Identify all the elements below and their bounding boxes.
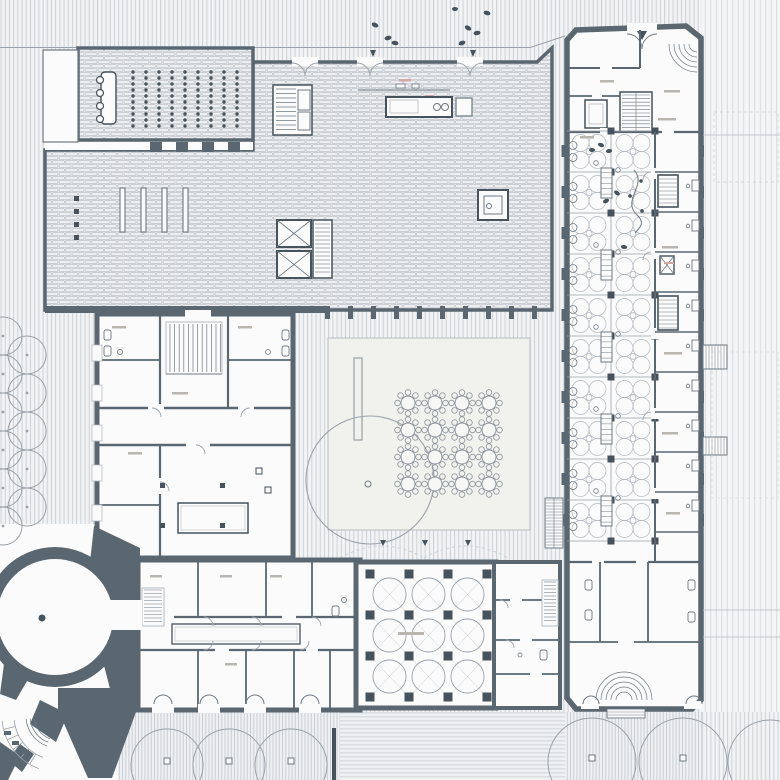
door-opening <box>600 64 612 72</box>
circle <box>170 118 173 121</box>
circle <box>482 396 496 410</box>
circle <box>209 82 212 85</box>
rect <box>692 380 699 391</box>
rect <box>562 145 567 157</box>
circle <box>131 70 134 73</box>
circle <box>26 430 29 433</box>
terrace-hatch-mid <box>340 712 565 780</box>
circle <box>170 106 173 109</box>
door-opening <box>292 57 318 66</box>
door-opening <box>148 404 164 412</box>
circle <box>2 373 5 376</box>
circle <box>209 118 212 121</box>
circle <box>157 88 160 91</box>
circle <box>196 82 199 85</box>
rect <box>162 188 167 232</box>
circle <box>209 100 212 103</box>
rect <box>92 505 102 521</box>
circle <box>196 118 199 121</box>
stair-block <box>313 220 332 278</box>
umbrella-post <box>680 755 686 761</box>
rect <box>371 306 376 319</box>
circle <box>455 450 469 464</box>
rect <box>699 514 704 526</box>
circle <box>482 450 496 464</box>
elevator <box>298 90 310 110</box>
rotunda-center-point <box>39 615 46 622</box>
door-opening <box>592 92 602 100</box>
southwest-block <box>138 560 360 713</box>
label-smudge <box>658 118 676 121</box>
label-smudge <box>112 326 126 329</box>
circle <box>455 423 469 437</box>
rect <box>608 374 615 381</box>
circle <box>482 423 496 437</box>
circle <box>196 88 199 91</box>
circle <box>455 477 469 491</box>
circle <box>157 112 160 115</box>
circle <box>401 396 415 410</box>
marker <box>265 487 271 493</box>
toilet <box>282 330 289 340</box>
bar-equipment <box>396 84 405 88</box>
umbrella-post <box>164 758 170 764</box>
podium-seat <box>97 103 104 110</box>
person-marker <box>452 7 458 11</box>
circle <box>222 70 225 73</box>
circle <box>235 82 238 85</box>
circle <box>2 411 5 414</box>
fountain <box>478 190 508 220</box>
circle <box>157 70 160 73</box>
circle <box>157 106 160 109</box>
circle <box>209 124 212 127</box>
circle <box>209 70 212 73</box>
toilet <box>540 650 547 660</box>
door-opening <box>520 636 532 644</box>
rect <box>699 309 704 321</box>
rotunda-floor <box>0 559 113 675</box>
column <box>160 483 165 488</box>
toilet <box>282 346 289 356</box>
rect <box>183 188 188 232</box>
label-smudge <box>580 136 594 139</box>
fixture <box>692 180 699 511</box>
rect <box>92 345 102 361</box>
rect <box>692 300 699 311</box>
circle <box>196 100 199 103</box>
rect <box>532 306 537 319</box>
toilet <box>104 330 111 340</box>
rect <box>562 350 567 362</box>
rect <box>608 128 615 135</box>
rect <box>483 611 492 620</box>
circle <box>196 106 199 109</box>
circle <box>183 106 186 109</box>
door-opening <box>662 128 674 136</box>
circle <box>131 124 134 127</box>
door-opening <box>457 57 483 66</box>
dot <box>640 209 644 213</box>
rect <box>608 538 615 545</box>
circle <box>131 112 134 115</box>
circle <box>235 76 238 79</box>
circle <box>183 118 186 121</box>
rect <box>699 268 704 280</box>
flag-pole <box>332 728 336 780</box>
rect <box>325 306 330 319</box>
circle <box>222 106 225 109</box>
door-opening <box>282 613 296 621</box>
circle <box>235 124 238 127</box>
circle <box>209 106 212 109</box>
circle <box>157 100 160 103</box>
circle <box>144 100 147 103</box>
circle <box>183 82 186 85</box>
rect <box>483 570 492 579</box>
circle <box>170 94 173 97</box>
rect <box>699 391 704 403</box>
label-smudge <box>664 352 682 355</box>
circle <box>401 477 415 491</box>
door-opening <box>510 596 522 604</box>
rect <box>141 188 146 232</box>
floor-plan-canvas <box>0 0 780 780</box>
entrance-steps <box>607 709 645 718</box>
circle <box>222 88 225 91</box>
circle <box>144 88 147 91</box>
circle <box>183 70 186 73</box>
circle <box>144 76 147 79</box>
rect <box>651 408 659 419</box>
circle <box>131 106 134 109</box>
bar-cabinet <box>456 98 472 116</box>
circle <box>157 118 160 121</box>
column <box>220 483 225 488</box>
circle <box>235 106 238 109</box>
door-opening <box>592 558 604 566</box>
rect <box>92 465 102 481</box>
label-smudge <box>664 90 680 93</box>
circle <box>131 88 134 91</box>
rect <box>608 292 615 299</box>
podium-seat <box>97 116 104 123</box>
rect <box>692 220 699 231</box>
circle <box>131 82 134 85</box>
circle <box>131 100 134 103</box>
rect <box>92 425 102 441</box>
passage <box>104 600 142 630</box>
rect <box>562 391 567 403</box>
rect <box>562 309 567 321</box>
dot <box>639 179 643 183</box>
circle <box>183 88 186 91</box>
toilet <box>585 580 592 590</box>
circle <box>2 525 5 528</box>
circle <box>131 118 134 121</box>
rect <box>699 145 704 157</box>
rect <box>405 611 414 620</box>
circle <box>170 82 173 85</box>
rect <box>120 188 125 232</box>
rect <box>366 570 375 579</box>
circle <box>222 82 225 85</box>
circle <box>26 468 29 471</box>
circle <box>183 112 186 115</box>
label-smudge <box>398 632 424 635</box>
rect <box>366 652 375 661</box>
rect <box>562 268 567 280</box>
toilet <box>332 606 339 616</box>
circle <box>196 124 199 127</box>
podium-seat <box>97 90 104 97</box>
circle <box>222 124 225 127</box>
circle <box>428 450 442 464</box>
rect <box>463 306 468 319</box>
bar-equipment <box>412 84 419 88</box>
rect <box>405 570 414 579</box>
circle <box>401 423 415 437</box>
circle <box>235 94 238 97</box>
circle <box>235 88 238 91</box>
rect <box>692 260 699 271</box>
rect <box>444 570 453 579</box>
label-smudge <box>220 575 232 578</box>
umbrella-post <box>226 758 232 764</box>
rect <box>394 306 399 319</box>
window-bay <box>299 704 321 713</box>
circle <box>144 112 147 115</box>
large-table <box>178 503 248 533</box>
rect <box>444 693 453 702</box>
rect <box>562 186 567 198</box>
circle <box>235 118 238 121</box>
window-bay <box>152 704 266 713</box>
circle <box>482 477 496 491</box>
rect <box>699 473 704 485</box>
circle <box>2 335 5 338</box>
circle <box>209 88 212 91</box>
bar-sink <box>434 104 441 111</box>
toilet <box>688 580 695 590</box>
circle <box>222 76 225 79</box>
circle <box>144 124 147 127</box>
floor-plan <box>0 0 780 780</box>
circle <box>209 76 212 79</box>
circle <box>196 76 199 79</box>
label-smudge <box>664 262 674 264</box>
circle <box>131 94 134 97</box>
circle <box>222 118 225 121</box>
rect <box>486 306 491 319</box>
circle <box>170 112 173 115</box>
circle <box>170 100 173 103</box>
rect <box>198 704 220 713</box>
rect <box>405 693 414 702</box>
label-smudge <box>270 575 282 578</box>
rect <box>92 385 102 401</box>
circle <box>144 94 147 97</box>
label-smudge <box>399 79 411 82</box>
rect <box>202 142 214 152</box>
circle <box>170 88 173 91</box>
circle <box>183 76 186 79</box>
circle <box>2 487 5 490</box>
circle <box>144 82 147 85</box>
circle <box>144 106 147 109</box>
rect <box>244 704 266 713</box>
rect <box>562 432 567 444</box>
circle <box>428 396 442 410</box>
toilet <box>688 612 695 622</box>
rect <box>692 420 699 431</box>
rect <box>608 456 615 463</box>
door-opening <box>238 404 254 412</box>
rect <box>699 186 704 198</box>
rect <box>444 611 453 620</box>
rect <box>150 142 162 152</box>
umbrella-post <box>589 755 595 761</box>
toilet <box>104 346 111 356</box>
column <box>160 523 165 528</box>
circle <box>183 100 186 103</box>
rect <box>692 340 699 351</box>
vaulted-hall <box>356 562 560 708</box>
rect <box>152 704 174 713</box>
pier-stub <box>4 731 11 735</box>
circle <box>183 94 186 97</box>
circle <box>157 94 160 97</box>
rect <box>74 196 79 201</box>
circle <box>428 423 442 437</box>
circle <box>183 124 186 127</box>
circle <box>196 94 199 97</box>
rect <box>699 227 704 239</box>
label-smudge <box>600 80 614 83</box>
circle <box>131 76 134 79</box>
door-opening <box>185 310 211 318</box>
label-smudge <box>662 246 678 249</box>
service-counter <box>658 296 678 330</box>
vestibule <box>43 50 78 142</box>
door-opening <box>618 638 634 646</box>
door-opening <box>215 646 229 654</box>
label-smudge <box>662 432 678 435</box>
umbrella-post <box>288 758 294 764</box>
circle <box>144 70 147 73</box>
circle <box>209 112 212 115</box>
door-opening <box>636 558 648 566</box>
east-wing <box>545 23 727 718</box>
rect <box>692 180 699 191</box>
rect <box>366 693 375 702</box>
west-wing <box>92 310 293 558</box>
rect <box>74 209 79 214</box>
rect <box>405 652 414 661</box>
circle <box>401 450 415 464</box>
door-opening <box>357 57 383 66</box>
rect <box>74 222 79 227</box>
rect <box>440 306 445 319</box>
elevator <box>298 112 310 130</box>
circle <box>196 70 199 73</box>
rect <box>509 306 514 319</box>
bar-sink <box>442 104 449 111</box>
door-opening <box>530 670 542 678</box>
person-marker <box>589 148 595 152</box>
circle <box>26 506 29 509</box>
circle <box>170 76 173 79</box>
rect <box>692 500 699 511</box>
circle <box>196 112 199 115</box>
rect <box>417 306 422 319</box>
pier-stub <box>22 750 29 754</box>
label-smudge <box>172 392 188 395</box>
circle <box>26 392 29 395</box>
rect <box>444 652 453 661</box>
label-smudge <box>225 663 237 666</box>
circle <box>170 124 173 127</box>
corridor <box>45 142 253 150</box>
label-smudge <box>238 326 252 329</box>
circle <box>428 477 442 491</box>
circle <box>455 396 469 410</box>
circle <box>235 112 238 115</box>
pier-stub <box>12 741 19 745</box>
label-smudge <box>128 452 142 455</box>
circle <box>157 124 160 127</box>
circle <box>222 112 225 115</box>
circle <box>222 94 225 97</box>
column <box>220 523 225 528</box>
rect <box>608 210 615 217</box>
rect <box>651 248 659 259</box>
auditorium <box>43 48 253 142</box>
rect <box>74 235 79 240</box>
rect <box>483 652 492 661</box>
rect <box>366 611 375 620</box>
rect <box>176 142 188 152</box>
circle <box>144 118 147 121</box>
podium-seat <box>97 77 104 84</box>
door-opening <box>306 646 318 654</box>
label-smudge <box>150 575 162 578</box>
circle <box>157 76 160 79</box>
circle <box>170 70 173 73</box>
label-smudge <box>666 512 680 515</box>
circle <box>235 70 238 73</box>
circle <box>2 449 5 452</box>
circle <box>222 100 225 103</box>
rect <box>562 227 567 239</box>
circle <box>235 100 238 103</box>
toilet <box>585 610 592 620</box>
rect <box>562 473 567 485</box>
marker <box>256 468 262 474</box>
rect <box>348 306 353 319</box>
circle <box>157 82 160 85</box>
rect <box>483 693 492 702</box>
circle <box>26 354 29 357</box>
rect <box>651 488 659 499</box>
courtyard <box>306 338 530 558</box>
rect <box>692 460 699 471</box>
rect <box>228 142 240 152</box>
dot <box>628 194 632 198</box>
circle <box>209 94 212 97</box>
